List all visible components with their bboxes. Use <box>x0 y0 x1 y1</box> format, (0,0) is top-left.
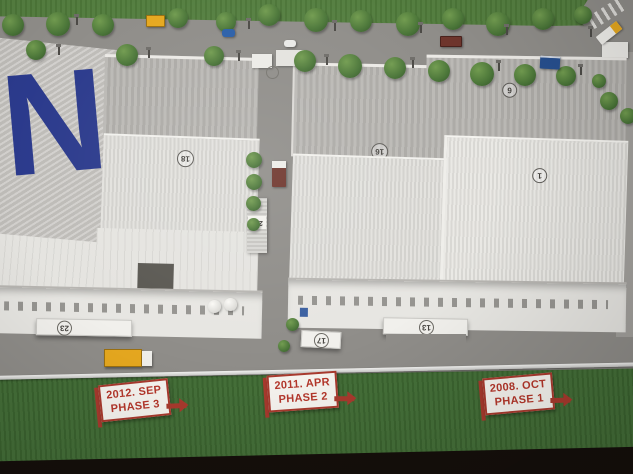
tree <box>2 14 24 36</box>
street-lamp <box>248 20 250 29</box>
red-truck-middle-road <box>272 161 286 187</box>
sign-arrow-icon <box>166 403 186 409</box>
street-lamp <box>148 49 150 58</box>
tree <box>338 54 362 78</box>
tree <box>442 8 464 30</box>
blue-car <box>222 29 235 37</box>
yellow-truck-bottom <box>104 348 152 368</box>
canopy-left: 23 <box>36 318 132 337</box>
street-lamp <box>580 66 582 75</box>
tree <box>384 57 406 79</box>
truck-cab <box>272 161 286 168</box>
truck-trailer <box>104 349 142 367</box>
street-lamp <box>238 52 240 61</box>
sign-phase: PHASE 1 <box>494 392 544 410</box>
street-lamp <box>498 62 500 71</box>
street-lamp <box>506 26 508 35</box>
tree <box>116 44 138 66</box>
phase-sign-2: 2011. APR PHASE 2 <box>262 366 375 424</box>
truck-cab <box>142 351 152 366</box>
tree <box>286 318 299 331</box>
tree <box>428 60 450 82</box>
sign-phase: PHASE 2 <box>278 390 328 407</box>
canopy-center: 17 <box>301 330 342 349</box>
dock-apron <box>386 334 466 346</box>
tree <box>592 74 606 88</box>
tree <box>600 92 618 110</box>
street-lamp <box>76 16 78 25</box>
tree <box>278 340 290 352</box>
street-lamp <box>590 28 592 37</box>
sign-board: 2011. APR PHASE 2 <box>267 371 339 413</box>
canopy-right: 13 <box>383 317 468 335</box>
tree <box>514 64 536 86</box>
tree <box>92 14 114 36</box>
tree <box>470 62 494 86</box>
tree <box>294 50 316 72</box>
tree <box>620 108 633 124</box>
canopy-number-center: 17 <box>317 336 326 345</box>
white-car <box>284 40 296 47</box>
canopy-number-badge: 13 <box>419 320 434 335</box>
phase-sign-1: 2008. OCT PHASE 1 <box>478 367 592 426</box>
tree <box>350 10 372 32</box>
tree <box>258 4 280 26</box>
tree <box>247 218 260 231</box>
yellow-truck-top <box>146 15 165 27</box>
street-lamp <box>58 46 60 55</box>
street-lamp <box>420 24 422 33</box>
dark-red-truck-top <box>440 36 462 47</box>
tree <box>26 40 46 60</box>
sign-board: 2012. SEP PHASE 3 <box>98 378 171 422</box>
canopy-number-right: 13 <box>422 323 431 332</box>
street-lamp <box>412 59 414 68</box>
sign-board: 2008. OCT PHASE 1 <box>482 372 555 415</box>
sign-arrow-icon <box>550 398 570 403</box>
tree <box>168 8 188 28</box>
sign-arrow-icon <box>334 396 354 401</box>
tree <box>204 46 224 66</box>
tree <box>304 8 328 32</box>
blue-bus <box>540 55 561 69</box>
tree <box>46 12 70 36</box>
street-lamp <box>326 56 328 65</box>
scale-model-photo: N 18 16 6 1 206 <box>0 0 633 474</box>
tree <box>246 174 262 190</box>
tree <box>246 152 262 168</box>
tree <box>246 196 261 211</box>
tree <box>574 6 592 24</box>
canopy-number-badge: 17 <box>314 333 330 349</box>
canopy-number-badge: 23 <box>57 321 72 336</box>
tree <box>532 8 554 30</box>
canopy-number-left: 23 <box>60 324 69 333</box>
tree <box>396 12 420 36</box>
street-lamp <box>334 22 336 31</box>
